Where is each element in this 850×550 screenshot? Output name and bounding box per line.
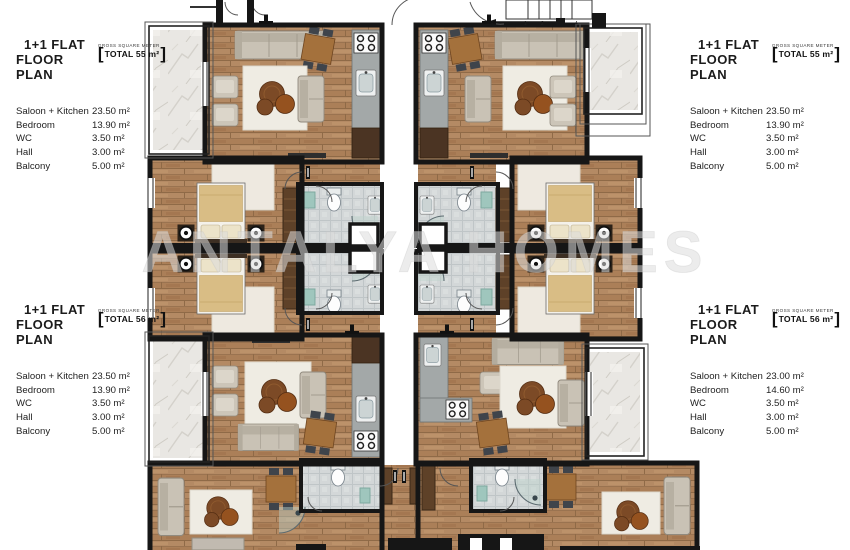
spec-block-top-left: 1+1 FLAT FLOOR PLAN GROSS SQUARE METER [… — [16, 37, 166, 173]
room-area-row: Saloon + Kitchen23.50 m² — [16, 370, 166, 384]
wardrobe-icon — [422, 466, 435, 510]
room-area-row: Balcony5.00 m² — [690, 159, 840, 173]
flat-type-title: 1+1 FLAT — [698, 302, 766, 317]
total-area: TOTAL 56 m² — [778, 314, 835, 324]
armchair-icon — [212, 104, 238, 126]
armchair-icon — [550, 76, 576, 98]
gross-square-meter-label: GROSS SQUARE METER — [772, 43, 840, 48]
flat-type-title: 1+1 FLAT — [698, 37, 766, 52]
watermark-text: ANTALYA HOMES — [142, 220, 709, 285]
room-value: 3.00 m² — [766, 412, 826, 423]
sink-icon — [420, 196, 434, 214]
toilet-icon — [457, 188, 471, 211]
armchair-icon — [212, 366, 238, 388]
sink-icon — [424, 344, 441, 366]
sofa-icon — [465, 76, 491, 122]
window-icon — [146, 178, 155, 208]
room-value: 5.00 m² — [766, 161, 826, 172]
sink-icon — [368, 196, 382, 214]
balcony-bottom-right — [590, 352, 640, 452]
gross-square-meter-label: GROSS SQUARE METER — [772, 308, 840, 313]
room-area-row: Hall3.00 m² — [16, 146, 166, 160]
room-label: WC — [16, 398, 92, 409]
floor-plan-title: FLOOR PLAN — [16, 52, 92, 82]
stove-icon — [354, 431, 378, 451]
spec-block-bottom-right: 1+1 FLAT FLOOR PLAN GROSS SQUARE METER [… — [690, 302, 840, 438]
room-value: 5.00 m² — [92, 161, 152, 172]
window-icon — [634, 288, 643, 318]
room-value: 3.50 m² — [92, 133, 152, 144]
room-label: Hall — [16, 412, 92, 423]
bath-mat — [304, 192, 315, 208]
room-area-list: Saloon + Kitchen23.00 m² Bedroom14.60 m²… — [690, 370, 840, 438]
room-area-row: Saloon + Kitchen23.50 m² — [16, 105, 166, 119]
kitchen-top-left — [352, 30, 380, 158]
floor-plan-page: 1 2 3 4 5 ANTALYA HOMES 1+1 FLAT FLOOR P… — [0, 0, 850, 550]
room-area-list: Saloon + Kitchen23.50 m² Bedroom13.90 m²… — [690, 105, 840, 173]
room-label: Balcony — [690, 161, 766, 172]
room-area-row: Bedroom13.90 m² — [16, 384, 166, 398]
gross-square-meter-label: GROSS SQUARE METER — [98, 43, 166, 48]
sofa-icon — [192, 538, 244, 550]
room-area-list: Saloon + Kitchen23.50 m² Bedroom13.90 m²… — [16, 370, 166, 438]
balcony-top-right — [588, 32, 638, 110]
room-area-row: Balcony5.00 m² — [16, 159, 166, 173]
room-label: Balcony — [16, 426, 92, 437]
room-value: 13.90 m² — [766, 120, 826, 131]
room-value: 23.00 m² — [766, 371, 826, 382]
room-area-row: Bedroom13.90 m² — [16, 119, 166, 133]
room-label: Hall — [690, 147, 766, 158]
bath-mat — [360, 488, 370, 503]
room-value: 23.50 m² — [766, 106, 826, 117]
armchair-icon — [550, 104, 576, 126]
room-label: Saloon + Kitchen — [690, 371, 766, 382]
bracket-close: ] — [834, 313, 840, 325]
bath-mat — [481, 192, 492, 208]
window-icon — [634, 178, 643, 208]
door-arc — [392, 0, 420, 25]
flat-type-title: 1+1 FLAT — [24, 37, 92, 52]
kitchen-top-right — [420, 30, 448, 158]
kitchen-bottom-left — [352, 337, 380, 457]
room-label: Balcony — [16, 161, 92, 172]
bath-mat — [304, 289, 315, 305]
room-value: 5.00 m² — [766, 426, 826, 437]
floor-plan-title: FLOOR PLAN — [690, 317, 766, 347]
sofa-icon — [664, 477, 690, 535]
bath-mat — [477, 486, 487, 501]
room-value: 5.00 m² — [92, 426, 152, 437]
sofa-icon — [558, 380, 584, 426]
tv-console — [470, 153, 508, 158]
floor-plan-title: FLOOR PLAN — [690, 52, 766, 82]
sofa-icon — [298, 76, 324, 122]
armchair-icon — [212, 76, 238, 98]
room-label: WC — [690, 398, 766, 409]
dimension-tick — [259, 15, 273, 24]
room-value: 3.50 m² — [766, 133, 826, 144]
room-value: 23.50 m² — [92, 106, 152, 117]
room-area-row: Bedroom13.90 m² — [690, 119, 840, 133]
room-value: 13.90 m² — [92, 120, 152, 131]
room-area-row: Hall3.00 m² — [690, 146, 840, 160]
stove-icon — [354, 33, 378, 53]
total-area: TOTAL 55 m² — [778, 49, 835, 59]
sofa-icon — [492, 338, 564, 365]
sink-icon — [356, 70, 376, 96]
sofa-icon — [238, 424, 299, 451]
sink-icon — [420, 285, 434, 303]
balcony-door-icon — [201, 62, 209, 106]
room-label: Saloon + Kitchen — [690, 106, 766, 117]
balcony-door-icon — [201, 372, 209, 416]
room-area-row: Saloon + Kitchen23.00 m² — [690, 370, 840, 384]
sink-icon — [368, 285, 382, 303]
bath-mat — [481, 289, 492, 305]
room-area-list: Saloon + Kitchen23.50 m² Bedroom13.90 m²… — [16, 105, 166, 173]
room-value: 23.50 m² — [92, 371, 152, 382]
flat-type-title: 1+1 FLAT — [24, 302, 92, 317]
room-value: 3.00 m² — [92, 147, 152, 158]
floor-plan-title: FLOOR PLAN — [16, 317, 92, 347]
bracket-close: ] — [834, 48, 840, 60]
dimension-tick — [482, 15, 496, 24]
room-label: Bedroom — [690, 385, 766, 396]
room-label: Balcony — [690, 426, 766, 437]
room-label: Hall — [690, 412, 766, 423]
room-value: 14.60 m² — [766, 385, 826, 396]
room-label: Bedroom — [16, 385, 92, 396]
stove-icon — [446, 400, 469, 419]
room-area-row: Saloon + Kitchen23.50 m² — [690, 105, 840, 119]
room-value: 3.00 m² — [766, 147, 826, 158]
room-label: Bedroom — [16, 120, 92, 131]
spec-block-top-right: 1+1 FLAT FLOOR PLAN GROSS SQUARE METER [… — [690, 37, 840, 173]
room-area-row: Balcony5.00 m² — [690, 424, 840, 438]
room-label: Saloon + Kitchen — [16, 371, 92, 382]
room-value: 3.50 m² — [92, 398, 152, 409]
toilet-icon — [327, 188, 341, 211]
room-area-row: WC3.50 m² — [690, 132, 840, 146]
room-area-row: Hall3.00 m² — [16, 411, 166, 425]
stove-icon — [422, 33, 446, 53]
room-label: WC — [690, 133, 766, 144]
room-value: 3.50 m² — [766, 398, 826, 409]
sink-icon — [356, 396, 376, 422]
bracket-close: ] — [160, 313, 166, 325]
room-area-row: WC3.50 m² — [16, 397, 166, 411]
room-label: Saloon + Kitchen — [16, 106, 92, 117]
room-area-row: WC3.50 m² — [690, 397, 840, 411]
sink-icon — [424, 70, 444, 96]
wardrobe-icon — [384, 468, 392, 504]
room-value: 13.90 m² — [92, 385, 152, 396]
room-label: Bedroom — [690, 120, 766, 131]
sofa-icon — [158, 478, 184, 536]
armchair-icon — [212, 394, 238, 416]
room-label: WC — [16, 133, 92, 144]
sofa-icon — [495, 31, 587, 59]
gross-square-meter-label: GROSS SQUARE METER — [98, 308, 166, 313]
total-area: TOTAL 55 m² — [104, 49, 161, 59]
door-arc — [225, 2, 238, 15]
bracket-close: ] — [160, 48, 166, 60]
room-value: 3.00 m² — [92, 412, 152, 423]
room-label: Hall — [16, 147, 92, 158]
room-area-row: Bedroom14.60 m² — [690, 384, 840, 398]
room-area-row: Balcony5.00 m² — [16, 424, 166, 438]
total-area: TOTAL 56 m² — [104, 314, 161, 324]
room-area-row: Hall3.00 m² — [690, 411, 840, 425]
room-area-row: WC3.50 m² — [16, 132, 166, 146]
spec-block-bottom-left: 1+1 FLAT FLOOR PLAN GROSS SQUARE METER [… — [16, 302, 166, 438]
